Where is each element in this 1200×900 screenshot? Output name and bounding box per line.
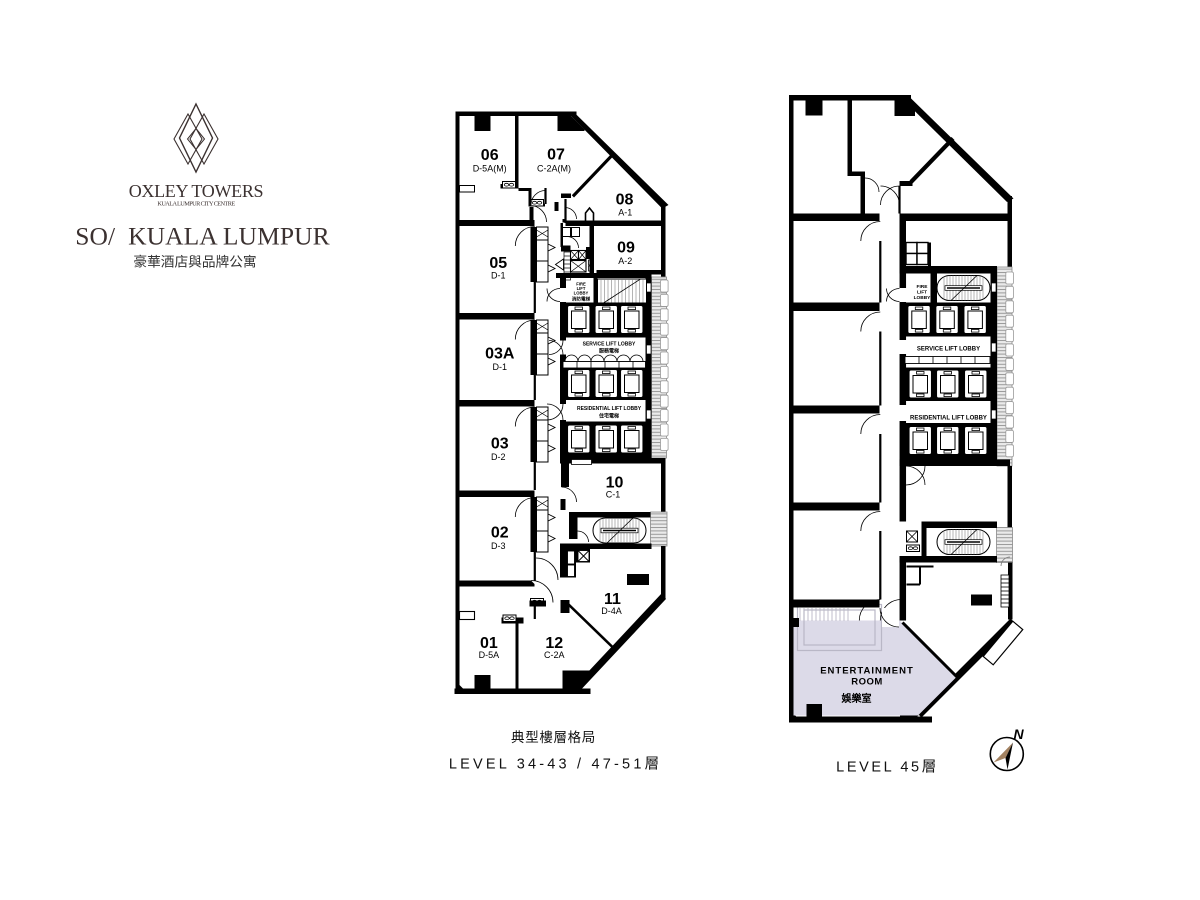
svg-text:02: 02 — [491, 524, 509, 541]
svg-text:FIRE: FIRE — [917, 284, 929, 290]
svg-text:D-3: D-3 — [491, 541, 506, 551]
svg-text:N: N — [1013, 726, 1024, 742]
svg-text:娛樂室: 娛樂室 — [841, 692, 872, 705]
svg-text:LIFT: LIFT — [917, 290, 927, 296]
svg-text:06: 06 — [481, 147, 499, 164]
svg-text:SO/ KUALA LUMPUR: SO/ KUALA LUMPUR — [75, 222, 330, 251]
svg-text:服務電梯: 服務電梯 — [599, 348, 619, 355]
svg-text:SERVICE LIFT LOBBY: SERVICE LIFT LOBBY — [917, 347, 980, 353]
svg-text:LOBBY: LOBBY — [574, 291, 589, 296]
svg-text:D-5A(M): D-5A(M) — [473, 164, 507, 174]
svg-text:典型樓層格局: 典型樓層格局 — [511, 730, 596, 745]
svg-text:D-2: D-2 — [491, 452, 506, 462]
svg-text:C-2A(M): C-2A(M) — [537, 164, 571, 174]
svg-text:D-4A: D-4A — [601, 606, 622, 616]
svg-text:A-1: A-1 — [618, 208, 632, 218]
svg-text:07: 07 — [547, 147, 565, 164]
svg-text:C-2A: C-2A — [544, 650, 565, 660]
svg-text:A-2: A-2 — [618, 256, 632, 266]
svg-text:OXLEY TOWERS: OXLEY TOWERS — [129, 181, 264, 201]
svg-text:D-1: D-1 — [491, 271, 506, 281]
svg-text:SERVICE LIFT LOBBY: SERVICE LIFT LOBBY — [583, 342, 636, 348]
svg-text:09: 09 — [617, 239, 635, 256]
svg-text:豪華酒店與品牌公寓: 豪華酒店與品牌公寓 — [133, 254, 256, 270]
svg-text:D-5A: D-5A — [479, 650, 500, 660]
svg-text:RESIDENTIAL LIFT LOBBY: RESIDENTIAL LIFT LOBBY — [910, 416, 987, 422]
svg-text:ENTERTAINMENT: ENTERTAINMENT — [820, 666, 914, 677]
svg-text:RESIDENTIAL LIFT LOBBY: RESIDENTIAL LIFT LOBBY — [577, 406, 642, 412]
svg-text:03: 03 — [491, 436, 509, 453]
svg-text:08: 08 — [616, 192, 634, 209]
svg-text:KUALA LUMPUR CITY CENTRE: KUALA LUMPUR CITY CENTRE — [157, 201, 235, 208]
svg-text:LOBBY: LOBBY — [914, 295, 932, 301]
svg-text:ROOM: ROOM — [851, 677, 883, 688]
svg-text:消防電梯: 消防電梯 — [572, 296, 591, 303]
svg-text:C-1: C-1 — [606, 490, 621, 500]
svg-text:住宅電梯: 住宅電梯 — [599, 413, 619, 420]
svg-text:LEVEL 45層: LEVEL 45層 — [836, 760, 939, 776]
svg-text:D-1: D-1 — [493, 362, 508, 372]
svg-text:03A: 03A — [485, 345, 515, 362]
svg-text:LEVEL 34-43 / 47-51層: LEVEL 34-43 / 47-51層 — [449, 757, 662, 773]
